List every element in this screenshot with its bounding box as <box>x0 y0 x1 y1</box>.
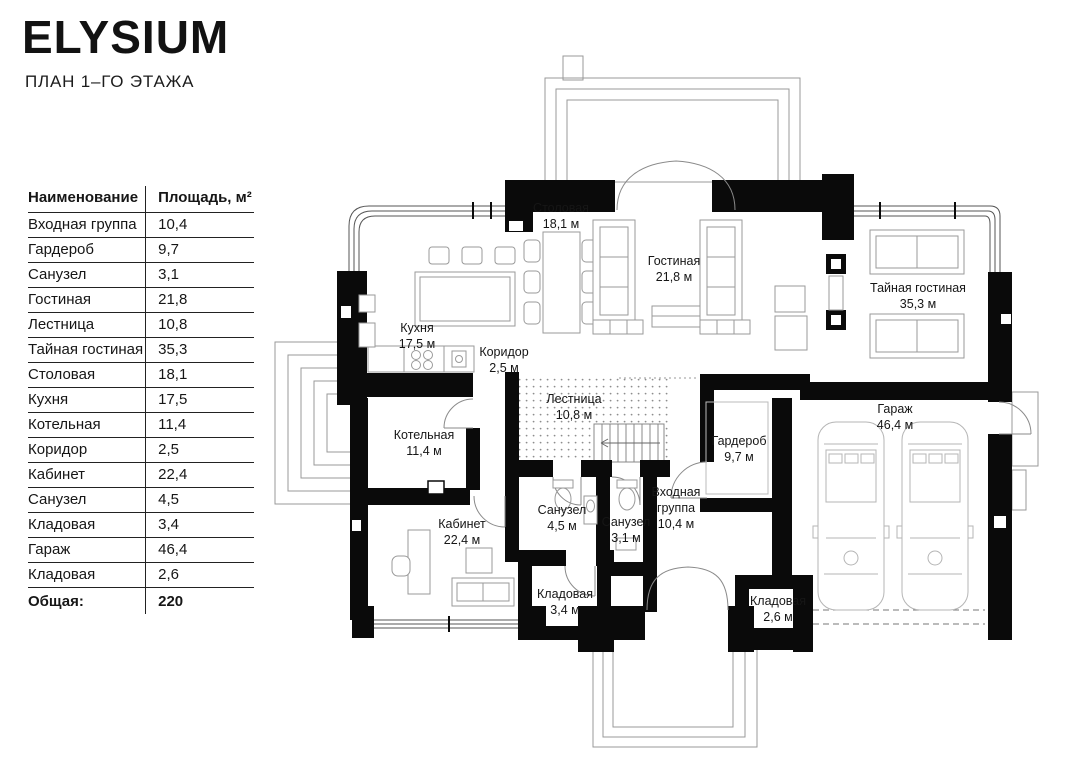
room-label-kuhnya: Кухня17,5 м <box>399 320 435 352</box>
garage-cars <box>813 422 973 610</box>
fridge <box>359 295 375 312</box>
room-label-kladovaya-34: Кладовая3,4 м <box>537 586 593 618</box>
garage-gate-dashed <box>813 610 985 624</box>
armchairs <box>775 286 807 350</box>
room-label-kotelnaya: Котельная11,4 м <box>394 427 455 459</box>
room-label-taynaya-gostinaya: Тайная гостиная35,3 м <box>870 280 966 312</box>
floorplan-poster: ELYSIUM ПЛАН 1–ГО ЭТАЖА Наименование Пло… <box>0 0 1072 768</box>
garage-side-door <box>999 402 1031 434</box>
office-chair <box>392 556 410 576</box>
room-label-garazh: Гараж46,4 м <box>877 401 913 433</box>
floorplan-drawing <box>0 0 1072 768</box>
room-label-garderob: Гардероб9,7 м <box>712 433 767 465</box>
boiler-door <box>444 399 473 428</box>
kitchen-island <box>415 247 515 326</box>
side-table <box>466 548 492 573</box>
toilet <box>619 488 635 510</box>
fireplace-body <box>829 276 843 310</box>
room-label-gostinaya: Гостиная21,8 м <box>648 253 700 285</box>
entrance-double-door <box>647 567 728 610</box>
room-label-kabinet: Кабинет22,4 м <box>438 516 486 548</box>
room-label-sanuzel-45: Санузел4,5 м <box>538 502 587 534</box>
chimney <box>563 56 583 80</box>
room-label-lestnitsa: Лестница10,8 м <box>546 391 601 423</box>
dining-table-set <box>524 232 598 333</box>
room-label-kladovaya-26: Кладовая2,6 м <box>750 593 806 625</box>
sink-unit <box>359 323 375 347</box>
car <box>813 422 889 610</box>
car <box>897 422 973 610</box>
room-label-vhodnaya-gruppa: Входная группа10,4 м <box>642 484 710 532</box>
room-label-stolovaya: Столовая18,1 м <box>533 200 589 232</box>
room-label-koridor: Коридор2,5 м <box>479 344 528 376</box>
desk <box>408 530 430 594</box>
